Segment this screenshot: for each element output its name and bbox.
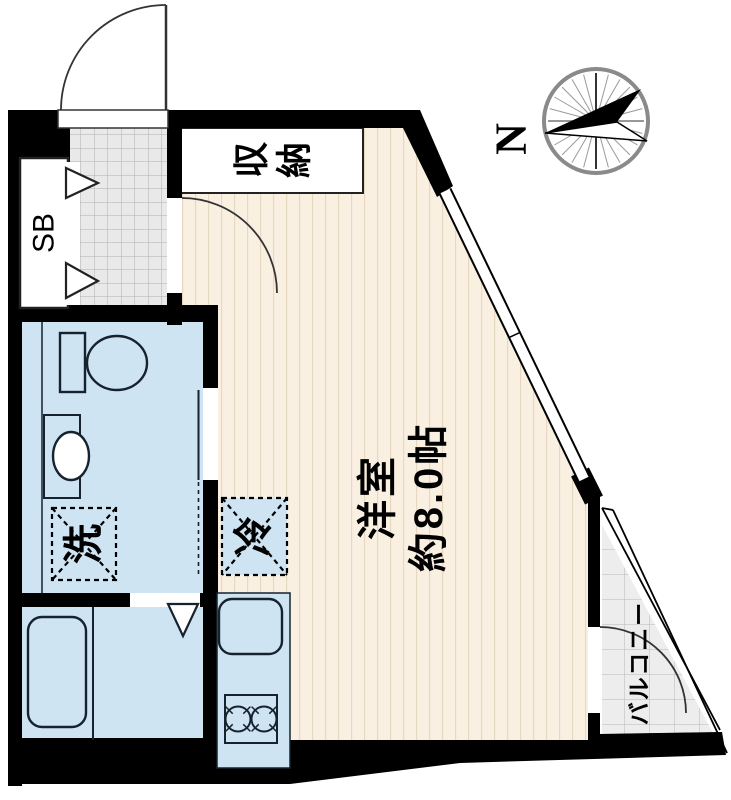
shoe-box-label: SB [28, 213, 61, 253]
svg-text:洋室: 洋室 [356, 454, 400, 540]
balcony-door-opening [588, 627, 600, 713]
floorplan-image: 収 納 SB 洗 冷 洋室 約8.0帖 バルコニー N [0, 0, 731, 800]
bathroom-door-opening [203, 388, 218, 480]
north-label: N [487, 123, 536, 155]
kitchen-counter [217, 593, 290, 768]
floorplan-svg: 収 納 SB 洗 冷 洋室 約8.0帖 バルコニー N [0, 0, 731, 800]
balcony-tiles [602, 525, 714, 735]
shower-room-floor [22, 607, 203, 740]
storage-label: 納 [274, 142, 315, 178]
compass [544, 69, 648, 173]
fridge-label: 冷 [232, 516, 276, 556]
svg-text:約8.0帖: 約8.0帖 [407, 422, 451, 573]
balcony-label: バルコニー [626, 601, 652, 726]
washer-label: 洗 [62, 524, 106, 564]
entrance-threshold [58, 110, 168, 128]
entrance-door [61, 5, 166, 110]
genkan-door-opening [167, 198, 182, 293]
storage-closet [181, 128, 363, 193]
bathroom-floor [22, 322, 203, 595]
storage-label: 収 [231, 142, 272, 178]
